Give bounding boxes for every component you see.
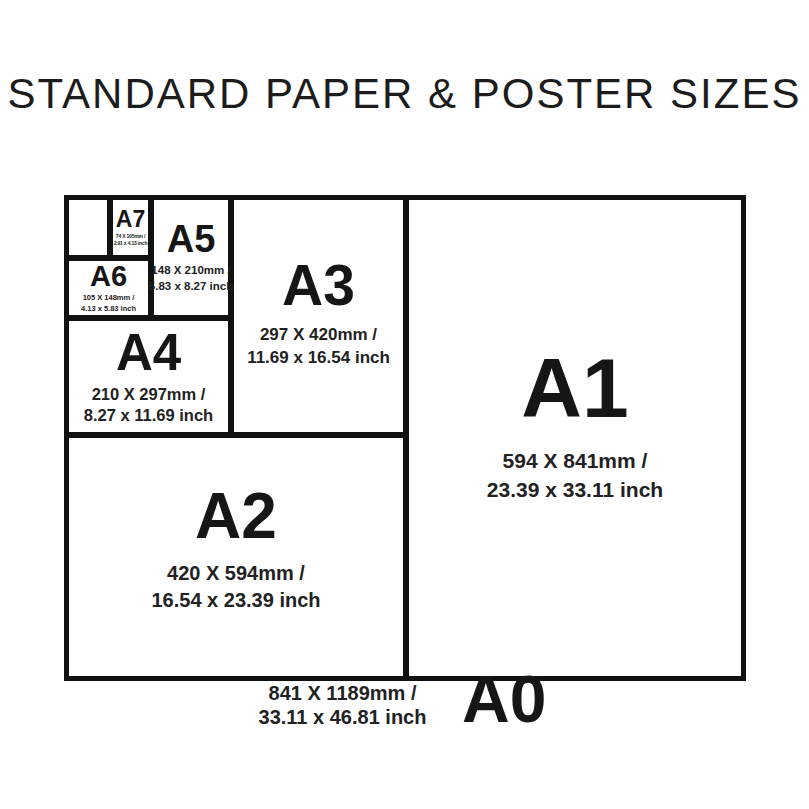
- size-dimensions-inch: 5.83 x 8.27 inch: [149, 279, 233, 295]
- size-dimensions-inch: 33.11 x 46.81 inch: [235, 705, 450, 729]
- box-a7: A7 74 X 105mm / 2.91 x 4.13 inch: [113, 200, 148, 255]
- size-dimensions-a1: 594 X 841mm / 23.39 x 33.11 inch: [487, 447, 663, 504]
- size-dimensions-a3: 297 X 420mm / 11.69 x 16.54 inch: [247, 324, 390, 370]
- size-dimensions-mm: 841 X 1189mm /: [235, 681, 450, 705]
- size-dimensions-a5: 148 X 210mm / 5.83 x 8.27 inch: [149, 263, 233, 294]
- box-a4: A4 210 X 297mm / 8.27 x 11.69 inch: [69, 321, 228, 432]
- box-a2: A2 420 X 594mm / 16.54 x 23.39 inch: [69, 438, 403, 676]
- size-dimensions-inch: 11.69 x 16.54 inch: [247, 347, 390, 370]
- size-label-a0: A0: [462, 666, 546, 732]
- box-a6: A6 105 X 148mm / 4.13 x 5.83 inch: [69, 261, 148, 315]
- box-a1: A1 594 X 841mm / 23.39 x 33.11 inch: [409, 200, 741, 676]
- size-dimensions-inch: 8.27 x 11.69 inch: [84, 405, 213, 426]
- size-dimensions-mm: 297 X 420mm /: [247, 324, 390, 347]
- size-dimensions-mm: 594 X 841mm /: [487, 447, 663, 475]
- size-dimensions-mm: 74 X 105mm /: [114, 233, 148, 240]
- size-dimensions-mm: 148 X 210mm /: [149, 263, 233, 279]
- size-dimensions-a2: 420 X 594mm / 16.54 x 23.39 inch: [151, 560, 320, 614]
- size-dimensions-mm: 105 X 148mm /: [81, 293, 136, 303]
- paper-size-diagram: A7 74 X 105mm / 2.91 x 4.13 inch A6 105 …: [64, 195, 746, 681]
- size-label-a7: A7: [116, 208, 145, 231]
- size-dimensions-a6: 105 X 148mm / 4.13 x 5.83 inch: [81, 293, 136, 313]
- box-a8-empty: [69, 200, 107, 255]
- paper-sizes-poster: STANDARD PAPER & POSTER SIZES A7 74 X 10…: [0, 0, 809, 809]
- page-title: STANDARD PAPER & POSTER SIZES: [0, 70, 809, 118]
- size-dimensions-inch: 2.91 x 4.13 inch: [114, 240, 148, 247]
- size-label-a2: A2: [195, 484, 277, 548]
- size-dimensions-a0: 841 X 1189mm / 33.11 x 46.81 inch: [235, 681, 450, 730]
- size-dimensions-inch: 23.39 x 33.11 inch: [487, 476, 663, 504]
- size-label-a3: A3: [282, 257, 355, 314]
- size-dimensions-a7: 74 X 105mm / 2.91 x 4.13 inch: [114, 233, 148, 247]
- size-label-a1: A1: [521, 346, 628, 430]
- size-dimensions-inch: 16.54 x 23.39 inch: [151, 587, 320, 614]
- size-dimensions-inch: 4.13 x 5.83 inch: [81, 304, 136, 314]
- size-dimensions-mm: 210 X 297mm /: [84, 384, 213, 405]
- size-label-a6: A6: [90, 262, 127, 291]
- size-label-a5: A5: [167, 220, 216, 258]
- size-label-a4: A4: [116, 327, 181, 378]
- box-a5: A5 148 X 210mm / 5.83 x 8.27 inch: [154, 200, 228, 315]
- size-dimensions-mm: 420 X 594mm /: [151, 560, 320, 587]
- size-dimensions-a4: 210 X 297mm / 8.27 x 11.69 inch: [84, 384, 213, 427]
- box-a3: A3 297 X 420mm / 11.69 x 16.54 inch: [234, 200, 403, 432]
